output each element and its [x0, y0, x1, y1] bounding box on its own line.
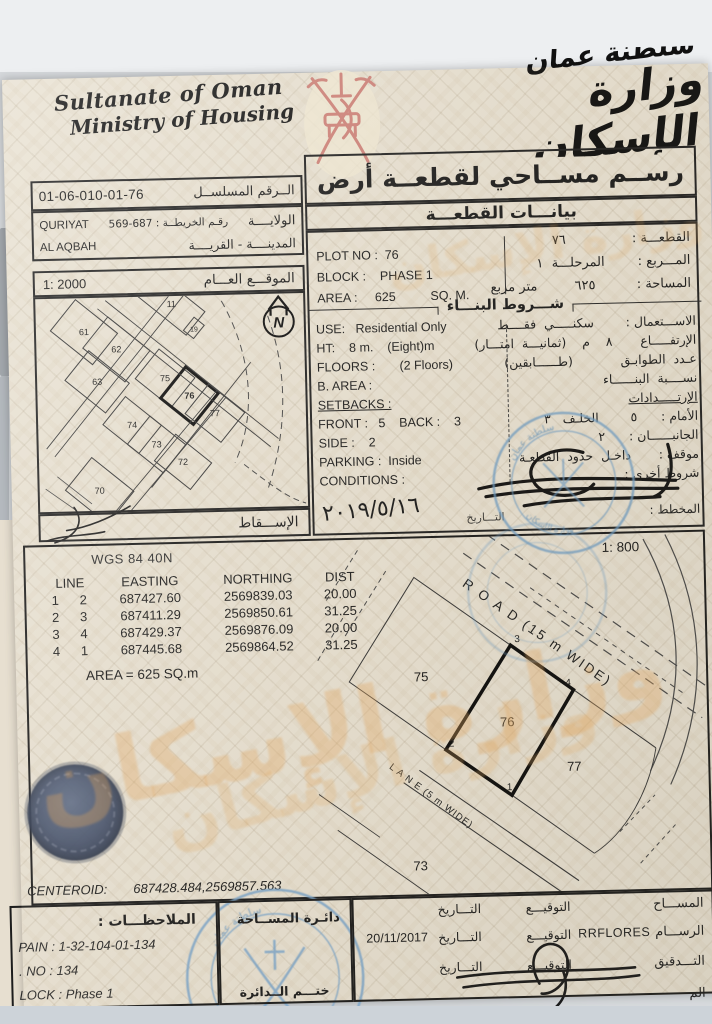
- barea-en: B. AREA :: [317, 378, 372, 393]
- side-en: SIDE : 2: [318, 435, 375, 450]
- survey-panel: WGS 84 40N 1: 800 LINE EASTING NORTHING …: [23, 530, 712, 906]
- document-title-box: رســم مســاحي لقطعــة أرض: [304, 146, 697, 205]
- height-en: HT: 8 m. (Eight)m: [316, 339, 434, 356]
- note-line-2: . NO : 134: [19, 962, 79, 978]
- plot-label-62: 62: [111, 344, 121, 354]
- rule-line: [309, 306, 430, 310]
- plot-label-76: 76: [184, 391, 194, 401]
- site-map-drawing: 61 62 63 70 74 73 72 75 76 77 11 19 N: [35, 293, 308, 512]
- plot-label-73: 73: [152, 439, 162, 449]
- building-conditions-title: شـــروط البنـــاء: [439, 296, 573, 315]
- city-value: AL AQBAH: [40, 241, 97, 254]
- centeroid-value: 687428.484,2569857.563: [133, 878, 282, 896]
- checker-signature: [442, 929, 644, 1014]
- col-line: LINE: [42, 575, 98, 591]
- ministry-header-english: Sultanate of Oman Ministry of Housing: [53, 73, 295, 142]
- use-en: USE: Residential Only: [316, 320, 447, 337]
- draftsman-label: الرســـام: [655, 924, 704, 940]
- signoff-box: المســـاح التوقيـــع التـــاريخ الرســـا…: [351, 889, 712, 1001]
- lane-label: L A N E (5 m WIDE): [387, 762, 475, 831]
- corner-3: 3: [514, 634, 520, 645]
- site-map-scale: 1: 2000: [43, 276, 87, 292]
- city-label: المدينــــة - القريــــة: [188, 235, 296, 253]
- plot-label-19: 19: [190, 326, 198, 333]
- barea-ar: نســــبة البنــــــاء: [603, 370, 698, 387]
- centeroid-row: CENTEROID: 687428.484,2569857.563: [27, 878, 282, 899]
- plot-label-11: 11: [167, 299, 177, 309]
- centeroid-label: CENTEROID:: [27, 882, 108, 899]
- serial-number-label: الــرقم المسلســل: [193, 183, 295, 200]
- plot-label-75: 75: [160, 373, 170, 383]
- handwritten-date: ٢٠١٩/٥/١٦: [321, 493, 420, 527]
- site-map-label: الموقـــع العـــام: [203, 270, 295, 288]
- wilaya-label: الولايــــة: [248, 213, 296, 229]
- detail-plot-77: 77: [567, 759, 582, 774]
- survey-department-box: دائـرة المســاحة ختـــم الــدائرة: [217, 898, 353, 1005]
- notes-header: الملاحظـــات :: [98, 912, 196, 930]
- svg-text:N: N: [273, 314, 285, 331]
- setbacks-ar: الإرتـــــدادات: [628, 389, 698, 406]
- department-name: دائـرة المســاحة: [237, 910, 340, 927]
- plot-label-61: 61: [79, 327, 89, 337]
- plot-label-74: 74: [127, 420, 137, 430]
- date-label: التـــاريخ: [437, 901, 481, 917]
- col-easting: EASTING: [98, 572, 202, 589]
- detail-plot-73: 73: [413, 858, 428, 873]
- region-box: الولايــــة رقـم الخريطــة : 687-569 QUR…: [31, 205, 304, 261]
- front-back-en: FRONT : 5 BACK : 3: [318, 414, 461, 431]
- datum-label: WGS 84 40N: [91, 550, 173, 567]
- projection-strip: الإســـقاط: [38, 508, 311, 542]
- detail-map-1-800: 3 4 1 2 76 75 77 73 R O A D (15 m WIDE) …: [313, 532, 712, 897]
- corner-1: 1: [507, 782, 513, 793]
- parking-en: PARKING : Inside: [319, 453, 422, 469]
- height-ar: الإرتفـــــاع ٨ م (ثمانيـــة امتـــار): [474, 332, 696, 352]
- plot-info-arabic: القطعـــة : ٧٦ المـــربع : المرحلـــة ١ …: [489, 226, 691, 300]
- department-seal-label: ختـــم الــدائرة: [239, 983, 329, 1000]
- use-ar: الاســـتعمال : سكنـــــي فقــــط: [497, 313, 696, 333]
- plot-details-panel: القطعـــة : ٧٦ المـــربع : المرحلـــة ١ …: [306, 222, 705, 536]
- corner-2: 2: [449, 739, 455, 750]
- road-label: R O A D (15 m WIDE): [460, 576, 615, 690]
- plot-data-subtitle: بيانـــات القطعـــة: [425, 201, 577, 225]
- note-line-1: PAIN : 1-32-104-01-134: [18, 937, 155, 955]
- document-title: رســم مســاحي لقطعــة أرض: [316, 156, 684, 194]
- projection-label: الإســـقاط: [238, 514, 299, 531]
- area-total: AREA = 625 SQ.m: [86, 666, 199, 684]
- front-back-ar: الأمام : ٥ الخلـف ٣: [544, 408, 698, 427]
- ministry-header-arabic-calligraphy: سلطنة عمان وزارة الإسكان: [409, 45, 707, 160]
- bracket-cap: [572, 303, 580, 311]
- bracket-cap: [431, 306, 439, 314]
- city-row: المدينــــة - القريــــة AL AQBAH: [40, 231, 296, 259]
- plot-label-70: 70: [95, 486, 105, 496]
- plot-label-63: 63: [92, 377, 102, 387]
- map-number: رقـم الخريطــة : 687-569: [108, 216, 228, 231]
- conditions-en: CONDITIONS :: [319, 473, 405, 489]
- surveyor-label: المســـاح: [653, 896, 704, 912]
- scanned-survey-document-photo: Sultanate of Oman Ministry of Housing سل…: [0, 0, 712, 1024]
- site-map-1-2000: 61 62 63 70 74 73 72 75 76 77 11 19 N: [33, 291, 310, 514]
- draftsman-date: 20/11/2017: [366, 930, 428, 945]
- checking-label: التـــدقيق: [654, 954, 705, 970]
- detail-plot-75: 75: [414, 669, 429, 684]
- calligraphy-line-main: وزارة الإسكان: [409, 54, 707, 160]
- signature-label: التوقيـــع: [525, 899, 570, 915]
- floors-en: FLOORS : (2 Floors): [317, 357, 453, 374]
- partial-row-label: الم: [689, 986, 706, 1001]
- rule-line: [580, 300, 701, 304]
- notes-box: الملاحظـــات : PAIN : 1-32-104-01-134 . …: [9, 901, 219, 1010]
- note-line-3: LOCK : Phase 1: [19, 986, 113, 1003]
- survey-document-paper: Sultanate of Oman Ministry of Housing سل…: [2, 63, 712, 1009]
- col-northing: NORTHING: [202, 570, 314, 588]
- photo-background-bottom: [0, 1006, 712, 1024]
- planner-signature: [463, 432, 700, 533]
- wilaya-value: QURIYAT: [39, 219, 89, 232]
- detail-plot-76: 76: [500, 714, 515, 729]
- corner-4: 4: [565, 678, 571, 689]
- plot-label-77: 77: [210, 408, 220, 418]
- projection-signature: [42, 500, 139, 548]
- plot-label-72: 72: [178, 457, 188, 467]
- floors-ar: عـدد الطوابـق (طــــــابقين): [504, 351, 697, 371]
- serial-number-value: 01-06-010-01-76: [39, 186, 144, 203]
- setbacks-en: SETBACKS :: [318, 397, 392, 413]
